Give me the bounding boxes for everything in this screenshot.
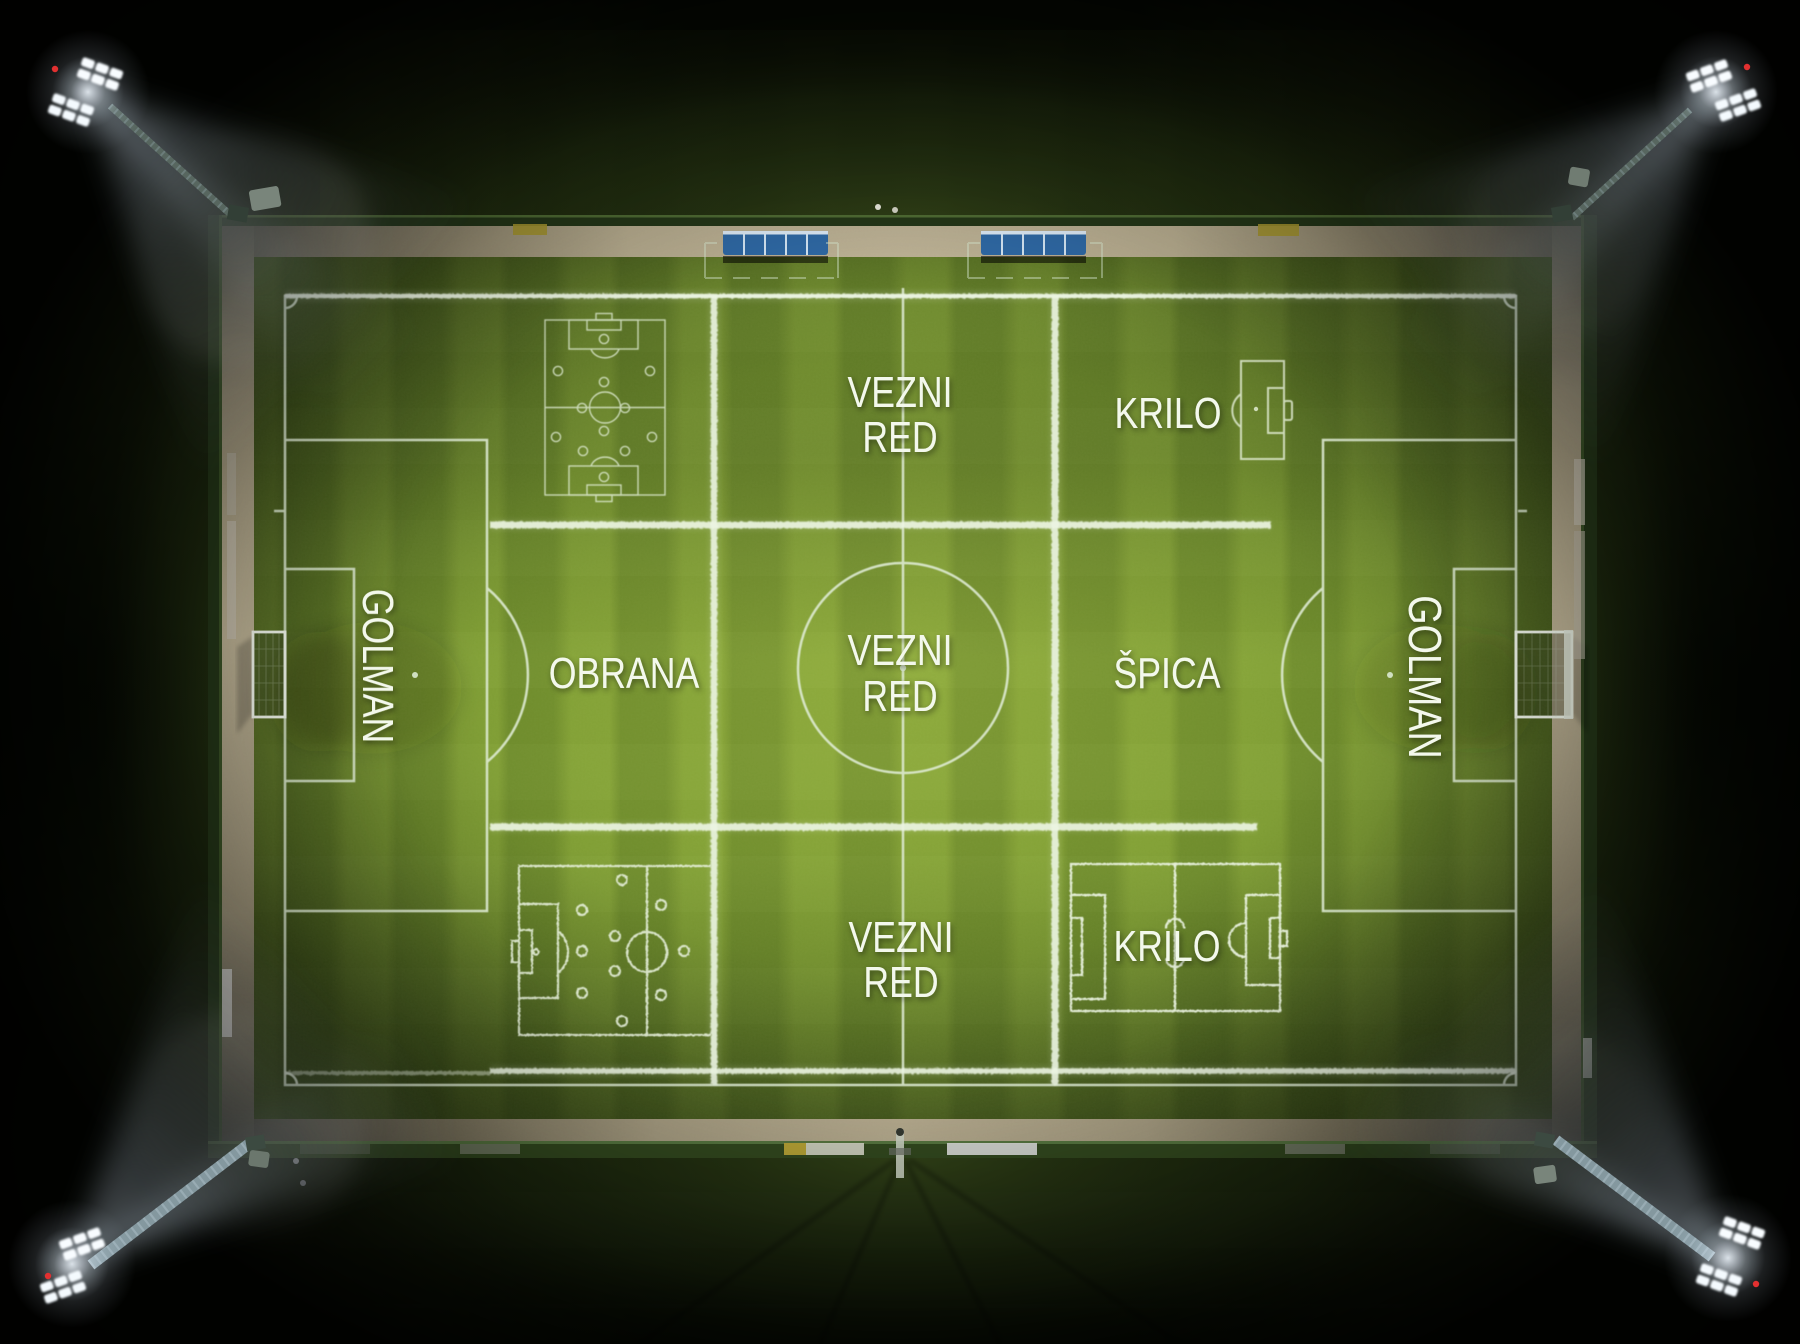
svg-text:KRILO: KRILO [1113, 923, 1220, 971]
svg-text:RED: RED [862, 414, 937, 462]
svg-text:VEZNI: VEZNI [848, 914, 953, 962]
svg-text:KRILO: KRILO [1114, 390, 1221, 438]
svg-text:ŠPICA: ŠPICA [1113, 649, 1220, 698]
svg-text:GOLMAN: GOLMAN [1399, 595, 1450, 758]
svg-text:OBRANA: OBRANA [549, 650, 700, 698]
svg-text:VEZNI: VEZNI [847, 627, 952, 675]
svg-text:RED: RED [862, 673, 937, 721]
svg-text:VEZNI: VEZNI [847, 369, 952, 417]
svg-text:RED: RED [863, 959, 938, 1007]
svg-text:GOLMAN: GOLMAN [353, 589, 401, 744]
